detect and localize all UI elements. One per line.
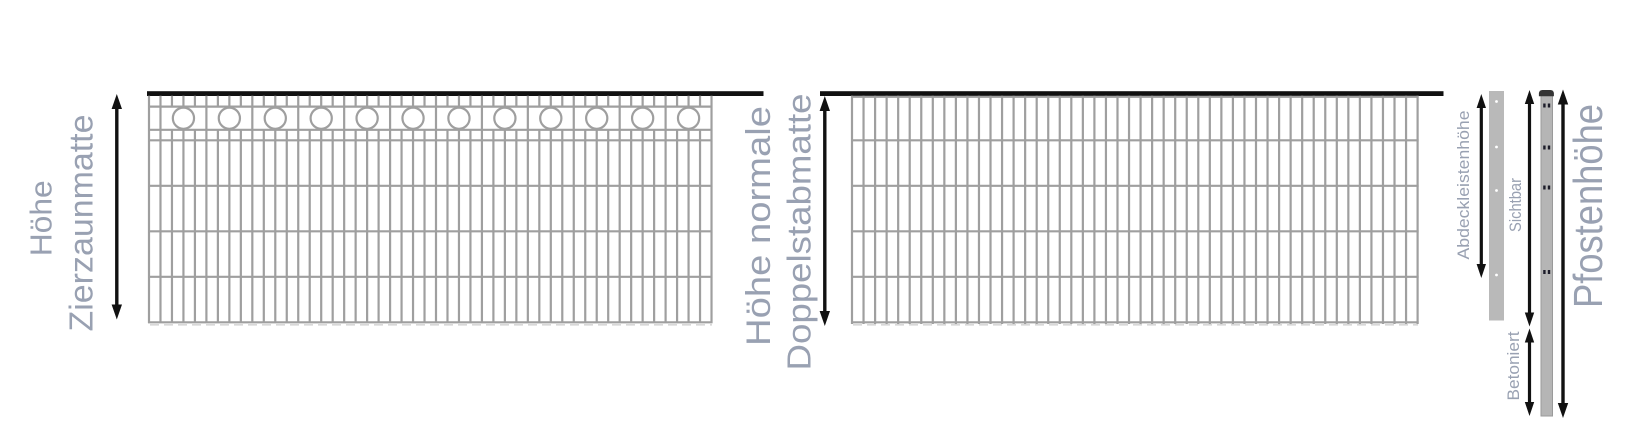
svg-text:Höhe: Höhe [24,180,59,256]
svg-text:Doppelstabmatte: Doppelstabmatte [781,94,818,371]
svg-text:Sichtbar: Sichtbar [1507,178,1525,232]
svg-text:Zierzaunmatte: Zierzaunmatte [63,115,100,332]
svg-text:Abdeckleistenhöhe: Abdeckleistenhöhe [1455,111,1473,260]
svg-text:Betoniert: Betoniert [1505,331,1523,400]
svg-text:Höhe normale: Höhe normale [740,106,778,346]
svg-text:Pfostenhöhe: Pfostenhöhe [1565,104,1611,308]
